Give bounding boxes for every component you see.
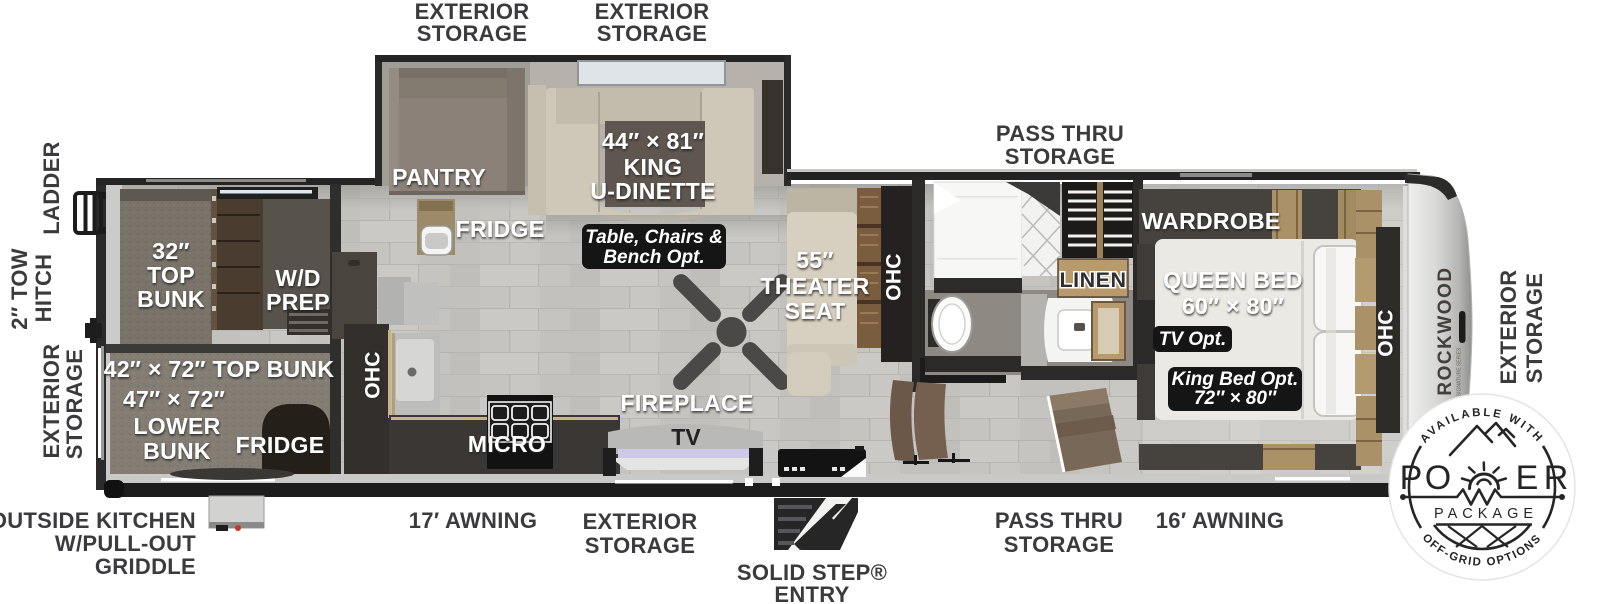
- svg-text:STORAGE: STORAGE: [597, 21, 708, 46]
- svg-text:60″ × 80″: 60″ × 80″: [1182, 293, 1284, 319]
- svg-text:PASS THRU: PASS THRU: [996, 121, 1124, 146]
- svg-text:GRIDDLE: GRIDDLE: [95, 554, 196, 579]
- svg-text:QUEEN BED: QUEEN BED: [1163, 267, 1302, 293]
- svg-text:Bench Opt.: Bench Opt.: [603, 247, 704, 268]
- svg-text:ROCKWOOD: ROCKWOOD: [1435, 266, 1456, 395]
- svg-text:32″: 32″: [152, 238, 190, 264]
- svg-text:LOWER: LOWER: [133, 413, 220, 439]
- svg-text:FIREPLACE: FIREPLACE: [620, 390, 753, 416]
- svg-text:P: P: [1400, 459, 1423, 497]
- svg-text:EXTERIOR: EXTERIOR: [1496, 270, 1521, 385]
- svg-text:THEATER: THEATER: [760, 273, 869, 299]
- svg-text:STORAGE: STORAGE: [62, 349, 87, 460]
- svg-text:STORAGE: STORAGE: [1522, 273, 1547, 384]
- svg-text:KING: KING: [624, 154, 683, 180]
- svg-text:LINEN: LINEN: [1060, 268, 1127, 292]
- svg-text:PASS THRU: PASS THRU: [995, 508, 1123, 533]
- svg-text:2″ TOW: 2″ TOW: [7, 248, 32, 330]
- svg-text:EXTERIOR: EXTERIOR: [39, 344, 64, 459]
- svg-text:OHC: OHC: [883, 253, 906, 301]
- svg-text:42″ × 72″ TOP BUNK: 42″ × 72″ TOP BUNK: [104, 356, 335, 382]
- svg-text:STORAGE: STORAGE: [585, 533, 696, 558]
- svg-text:EXTERIOR: EXTERIOR: [583, 509, 698, 534]
- svg-text:LADDER: LADDER: [39, 141, 64, 234]
- svg-text:OUTSIDE KITCHEN: OUTSIDE KITCHEN: [0, 508, 196, 533]
- svg-text:PREP: PREP: [266, 289, 330, 315]
- svg-text:King Bed Opt.: King Bed Opt.: [1172, 369, 1299, 390]
- svg-text:SIGNATURE SERIES: SIGNATURE SERIES: [1456, 347, 1462, 396]
- svg-text:55″: 55″: [796, 247, 834, 273]
- svg-text:HITCH: HITCH: [31, 254, 56, 323]
- svg-text:47″ × 72″: 47″ × 72″: [123, 386, 225, 412]
- svg-text:PACKAGE: PACKAGE: [1434, 506, 1538, 522]
- svg-text:OHC: OHC: [1375, 309, 1398, 357]
- svg-text:STORAGE: STORAGE: [1004, 532, 1115, 557]
- svg-text:PANTRY: PANTRY: [392, 164, 486, 190]
- svg-text:WARDROBE: WARDROBE: [1141, 208, 1280, 234]
- svg-text:W/D: W/D: [275, 265, 321, 291]
- svg-text:FRIDGE: FRIDGE: [236, 432, 325, 458]
- svg-text:E: E: [1516, 459, 1539, 497]
- svg-text:W/PULL-OUT: W/PULL-OUT: [55, 531, 196, 556]
- svg-text:STORAGE: STORAGE: [1005, 144, 1116, 169]
- svg-text:72″ × 80″: 72″ × 80″: [1194, 388, 1277, 409]
- svg-text:STORAGE: STORAGE: [417, 21, 528, 46]
- svg-text:MICRO: MICRO: [468, 431, 546, 457]
- svg-text:16′ AWNING: 16′ AWNING: [1156, 508, 1284, 533]
- svg-text:SEAT: SEAT: [785, 298, 846, 324]
- svg-text:TV: TV: [671, 424, 701, 450]
- svg-text:OHC: OHC: [362, 351, 385, 399]
- svg-text:17′ AWNING: 17′ AWNING: [409, 508, 537, 533]
- svg-text:O: O: [1425, 459, 1451, 497]
- svg-text:R: R: [1544, 459, 1569, 497]
- svg-text:FRIDGE: FRIDGE: [456, 216, 545, 242]
- svg-text:BUNK: BUNK: [137, 286, 205, 312]
- svg-text:44″ × 81″: 44″ × 81″: [602, 128, 704, 154]
- svg-text:ENTRY: ENTRY: [774, 582, 849, 604]
- svg-text:TV Opt.: TV Opt.: [1159, 329, 1227, 350]
- svg-text:TOP: TOP: [147, 262, 195, 288]
- svg-text:BUNK: BUNK: [143, 438, 211, 464]
- svg-text:Table, Chairs &: Table, Chairs &: [585, 227, 723, 248]
- svg-text:U-DINETTE: U-DINETTE: [590, 178, 715, 204]
